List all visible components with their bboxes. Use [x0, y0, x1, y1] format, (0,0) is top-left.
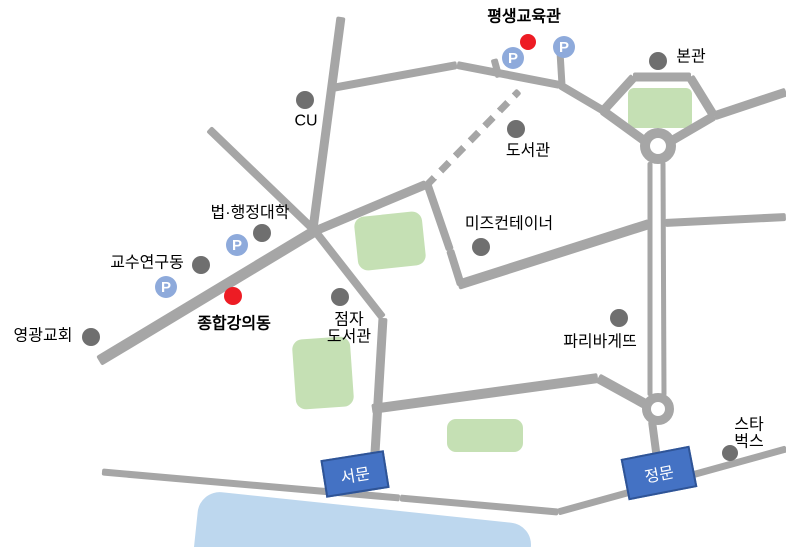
- place-label-paris-baguette: 파리바게뜨: [563, 333, 637, 350]
- green-area: [353, 211, 426, 272]
- marker-dot-miz-container: [472, 238, 490, 256]
- road-segment: [96, 226, 318, 365]
- road-segment: [423, 182, 454, 252]
- marker-dot-yeonggwang-gyohoe: [82, 328, 100, 346]
- parking-icon: P: [155, 276, 177, 298]
- roundabout: [642, 393, 674, 425]
- road-segment: [665, 213, 786, 227]
- marker-dot-cu: [296, 91, 314, 109]
- marker-dot-jonghap-ganguidong: [224, 287, 242, 305]
- green-area: [292, 336, 355, 410]
- marker-dot-beop-haengjeong-daehak: [253, 224, 271, 242]
- place-label-gyosu-yeongudong: 교수연구동: [110, 254, 184, 271]
- road-segment: [661, 162, 667, 396]
- gate-sign-seomun: 서문: [320, 450, 389, 498]
- place-label-doseogwan: 도서관: [506, 142, 550, 159]
- place-label-yeonggwang-gyohoe: 영광교회: [14, 327, 73, 344]
- place-label-pyeongsaeng-gyoyukgwan: 평생교육관: [487, 8, 561, 25]
- place-label-bongwan: 본관: [676, 48, 705, 65]
- road-segment: [648, 162, 653, 396]
- parking-icon: P: [226, 234, 248, 256]
- road-segment: [633, 73, 691, 82]
- parking-icon: P: [502, 47, 524, 69]
- place-label-cu: CU: [294, 112, 317, 129]
- marker-dot-bongwan: [649, 52, 667, 70]
- marker-dot-jeomja-doseogwan: [331, 288, 349, 306]
- road-segment: [713, 88, 786, 121]
- green-area: [447, 419, 523, 452]
- marker-dot-gyosu-yeongudong: [192, 256, 210, 274]
- place-label-miz-container: 미즈컨테이너: [465, 215, 553, 232]
- road-segment: [331, 61, 457, 92]
- road-segment: [400, 495, 559, 516]
- road-segment: [596, 374, 650, 410]
- roundabout: [640, 128, 676, 164]
- marker-dot-doseogwan: [507, 120, 525, 138]
- footpath-dashed: [423, 89, 521, 189]
- road-segment: [370, 318, 388, 471]
- pond-area: [189, 490, 534, 547]
- parking-icon: P: [553, 36, 575, 58]
- campus-map: 평생교육관본관CU도서관법·행정대학교수연구동영광교회종합강의동점자 도서관미즈…: [0, 0, 786, 547]
- marker-dot-pyeongsaeng-gyoyukgwan: [520, 34, 536, 50]
- place-label-starbucks: 스타벅스: [731, 417, 768, 452]
- road-segment: [558, 82, 606, 115]
- place-label-jonghap-ganguidong: 종합강의동: [197, 315, 271, 332]
- marker-dot-paris-baguette: [610, 309, 628, 327]
- place-label-jeomja-doseogwan: 점자 도서관: [327, 312, 371, 347]
- place-label-beop-haengjeong-daehak: 법·행정대학: [211, 204, 290, 221]
- green-area: [628, 88, 692, 128]
- gate-sign-jeongmun: 정문: [621, 446, 698, 501]
- road-segment: [371, 373, 598, 414]
